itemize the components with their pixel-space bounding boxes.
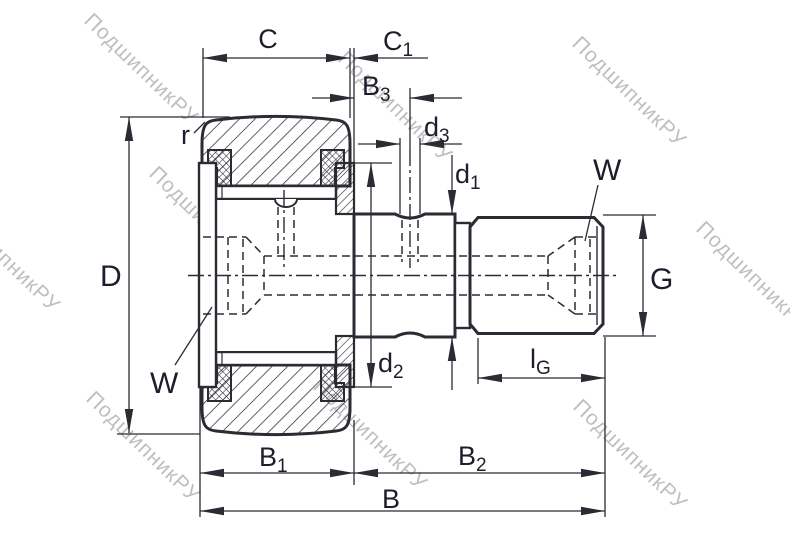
arrow [367, 163, 375, 187]
arrow [200, 469, 224, 477]
dim-label-lG: lG [530, 344, 551, 379]
dim-label-D: D [100, 260, 122, 293]
arrow [203, 54, 227, 62]
end-washer-right-bottom [336, 336, 354, 387]
watermark-text: ПодшипникРУ [334, 47, 457, 167]
watermark-text: ПодшипникРУ [0, 197, 65, 317]
watermark-text: ПодшипникРУ [569, 395, 692, 515]
watermark-text: ПодшипникРУ [568, 32, 691, 152]
dim-label-B1: B1 [259, 442, 288, 477]
dim-label-d2: d2 [378, 348, 404, 383]
dim-label-C1: C1 [383, 26, 413, 61]
dim-label-B2: B2 [458, 441, 487, 476]
watermark-text: ПодшипникРУ [80, 9, 203, 129]
arrow [581, 507, 605, 515]
arrow [448, 190, 456, 214]
arrow [581, 469, 605, 477]
dim-label-C: C [258, 24, 278, 54]
arrow [410, 94, 434, 102]
arrow [581, 374, 605, 382]
dim-label-B: B [382, 484, 400, 514]
arrow [200, 507, 224, 515]
needle-rollers-bottom [216, 352, 336, 365]
dim-label-W-right: W [593, 154, 622, 187]
dim-label-r: r [181, 120, 190, 150]
watermark-text: ПодшипникРУ [692, 217, 790, 337]
arrow [639, 312, 647, 336]
dim-label-d1: d1 [455, 159, 481, 194]
dim-label-G: G [650, 263, 673, 296]
arrow [448, 337, 456, 361]
watermark-text: ПодшипникРУ [82, 387, 205, 507]
needle-rollers-top [216, 186, 336, 199]
bearing-technical-drawing: ПодшипникРУ ПодшипникРУ ПодшипникРУ Подш… [0, 0, 790, 547]
arrow [330, 469, 354, 477]
dim-label-W-left: W [150, 367, 179, 400]
arrow [125, 117, 133, 141]
arrow [639, 215, 647, 239]
arrow [354, 469, 378, 477]
drawing-canvas: ПодшипникРУ ПодшипникРУ ПодшипникРУ Подш… [0, 0, 790, 547]
end-washer-right-top [336, 163, 354, 214]
dim-label-B3: B3 [362, 71, 391, 106]
arrow [376, 140, 400, 148]
arrow [478, 374, 502, 382]
lube-hole-mouth [275, 199, 297, 207]
arrow [367, 363, 375, 387]
dim-label-d3: d3 [424, 112, 450, 147]
